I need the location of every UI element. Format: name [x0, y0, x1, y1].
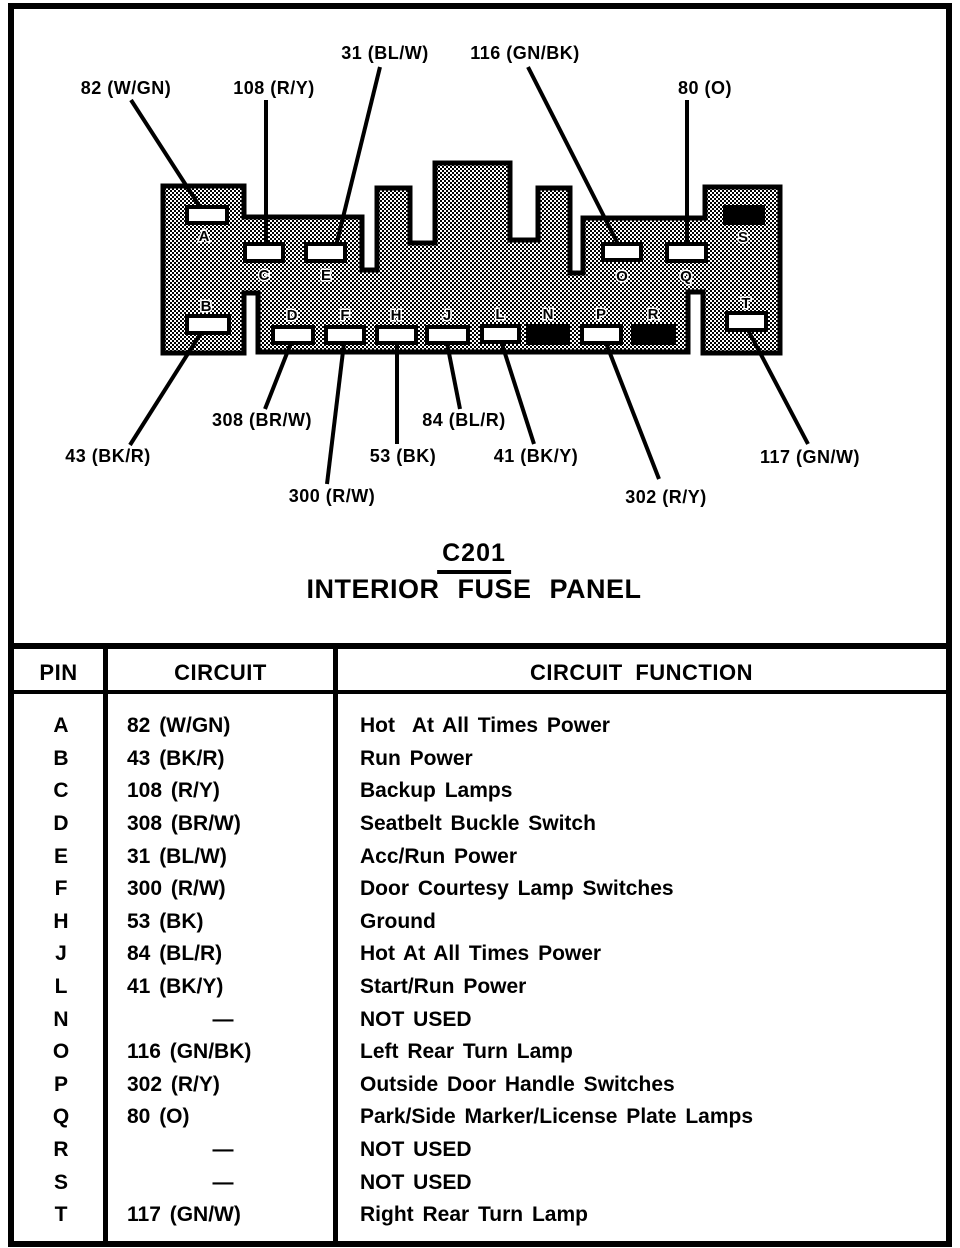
callout-label-31: 31 (BL/W)	[341, 43, 429, 64]
pin-cell: H	[14, 910, 108, 934]
pin-cell: D	[14, 812, 108, 836]
table-header-separator	[8, 690, 952, 694]
circuit-cell: 31 (BL/W)	[108, 845, 338, 869]
callout-label-302: 302 (R/Y)	[625, 487, 707, 508]
column-header-pin: PIN	[14, 659, 103, 687]
table-row: H 53 (BK) Ground	[14, 906, 945, 939]
function-cell: NOT USED	[338, 1171, 945, 1195]
function-cell: Door Courtesy Lamp Switches	[338, 877, 945, 901]
callout-label-300: 300 (R/W)	[289, 486, 376, 507]
pin-letter-q: Q	[680, 268, 692, 285]
pin-slot-q	[667, 244, 706, 261]
callout-label-108: 108 (R/Y)	[233, 78, 315, 99]
callout-line-41	[501, 341, 534, 444]
table-row: J 84 (BL/R) Hot At All Times Power	[14, 938, 945, 971]
pin-letter-d: D	[287, 307, 298, 324]
function-cell: Acc/Run Power	[338, 845, 945, 869]
pin-slot-h	[377, 327, 416, 343]
pin-cell: P	[14, 1073, 108, 1097]
function-cell: Park/Side Marker/License Plate Lamps	[338, 1105, 945, 1129]
circuit-cell: 302 (R/Y)	[108, 1073, 338, 1097]
function-cell: Run Power	[338, 747, 945, 771]
circuit-cell: 53 (BK)	[108, 910, 338, 934]
pin-cell: Q	[14, 1105, 108, 1129]
pin-letter-h: H	[391, 307, 402, 324]
table-row: C 108 (R/Y) Backup Lamps	[14, 775, 945, 808]
table-row: T 117 (GN/W) Right Rear Turn Lamp	[14, 1199, 945, 1232]
table-row: O 116 (GN/BK) Left Rear Turn Lamp	[14, 1036, 945, 1069]
table-row: E 31 (BL/W) Acc/Run Power	[14, 840, 945, 873]
callout-label-308: 308 (BR/W)	[212, 410, 312, 431]
circuit-cell: 80 (O)	[108, 1105, 338, 1129]
pin-letter-c: C	[259, 267, 270, 284]
function-cell: NOT USED	[338, 1008, 945, 1032]
pin-letter-b: B	[201, 298, 212, 315]
pin-slot-s	[725, 207, 763, 223]
pin-letter-e: E	[321, 267, 331, 284]
circuit-cell: —	[108, 1171, 338, 1195]
function-cell: Left Rear Turn Lamp	[338, 1040, 945, 1064]
table-row: D 308 (BR/W) Seatbelt Buckle Switch	[14, 808, 945, 841]
table-row: A 82 (W/GN) Hot At All Times Power	[14, 710, 945, 743]
pin-cell: C	[14, 779, 108, 803]
pin-slot-l	[482, 326, 519, 342]
callout-label-82: 82 (W/GN)	[81, 78, 172, 99]
circuit-cell: —	[108, 1138, 338, 1162]
pin-letter-r: R	[648, 306, 659, 323]
circuit-cell: 116 (GN/BK)	[108, 1040, 338, 1064]
table-row: B 43 (BK/R) Run Power	[14, 743, 945, 776]
pin-letter-p: P	[596, 306, 606, 323]
table-row: L 41 (BK/Y) Start/Run Power	[14, 971, 945, 1004]
table-row: F 300 (R/W) Door Courtesy Lamp Switches	[14, 873, 945, 906]
circuit-cell: 117 (GN/W)	[108, 1203, 338, 1227]
pin-cell: A	[14, 714, 108, 738]
pin-letter-o: O	[616, 268, 628, 285]
pin-letter-s: S	[738, 229, 748, 246]
circuit-cell: 43 (BK/R)	[108, 747, 338, 771]
pin-slot-o	[603, 244, 641, 260]
column-header-circuit: CIRCUIT	[108, 659, 333, 687]
pin-cell: N	[14, 1008, 108, 1032]
column-header-function: CIRCUIT FUNCTION	[338, 659, 945, 687]
circuit-cell: 300 (R/W)	[108, 877, 338, 901]
table-row: P 302 (R/Y) Outside Door Handle Switches	[14, 1069, 945, 1102]
callout-label-116: 116 (GN/BK)	[470, 43, 580, 64]
pin-slot-d	[273, 327, 313, 343]
pin-slot-f	[326, 327, 364, 343]
pin-cell: B	[14, 747, 108, 771]
pin-cell: O	[14, 1040, 108, 1064]
callout-line-302	[606, 343, 659, 479]
table-row: Q 80 (O) Park/Side Marker/License Plate …	[14, 1101, 945, 1134]
function-cell: Backup Lamps	[338, 779, 945, 803]
callout-label-117: 117 (GN/W)	[760, 447, 860, 468]
table-row: N — NOT USED	[14, 1003, 945, 1036]
circuit-cell: 84 (BL/R)	[108, 942, 338, 966]
connector-name-title: INTERIOR FUSE PANEL	[306, 574, 641, 605]
circuit-cell: 41 (BK/Y)	[108, 975, 338, 999]
function-cell: Outside Door Handle Switches	[338, 1073, 945, 1097]
callout-label-84: 84 (BL/R)	[422, 410, 506, 431]
function-cell: Right Rear Turn Lamp	[338, 1203, 945, 1227]
table-row: R — NOT USED	[14, 1134, 945, 1167]
pin-cell: L	[14, 975, 108, 999]
table-row: S — NOT USED	[14, 1166, 945, 1199]
pin-cell: E	[14, 845, 108, 869]
function-cell: Start/Run Power	[338, 975, 945, 999]
pin-cell: R	[14, 1138, 108, 1162]
function-cell: Seatbelt Buckle Switch	[338, 812, 945, 836]
pin-slot-c	[245, 244, 283, 261]
pin-cell: F	[14, 877, 108, 901]
pin-cell: S	[14, 1171, 108, 1195]
pin-slot-e	[306, 244, 345, 261]
function-cell: Ground	[338, 910, 945, 934]
pin-cell: T	[14, 1203, 108, 1227]
pin-cell: J	[14, 942, 108, 966]
circuit-cell: 308 (BR/W)	[108, 812, 338, 836]
pin-letter-f: F	[340, 307, 349, 324]
pin-table-body: A 82 (W/GN) Hot At All Times Power B 43 …	[14, 710, 945, 1232]
pin-letter-t: T	[741, 295, 750, 312]
function-cell: Hot At All Times Power	[338, 942, 945, 966]
pin-slot-r	[633, 326, 674, 343]
pin-letter-n: N	[543, 306, 554, 323]
function-cell: Hot At All Times Power	[338, 714, 945, 738]
pin-slot-a	[187, 207, 227, 223]
pin-slot-t	[727, 313, 766, 330]
circuit-cell: 108 (R/Y)	[108, 779, 338, 803]
circuit-cell: 82 (W/GN)	[108, 714, 338, 738]
pin-slot-b	[187, 316, 229, 333]
connector-id-title: C201	[437, 539, 511, 574]
pin-slot-n	[528, 326, 568, 343]
function-cell: NOT USED	[338, 1138, 945, 1162]
callout-label-53: 53 (BK)	[370, 446, 437, 467]
callout-label-41: 41 (BK/Y)	[494, 446, 579, 467]
pin-slot-j	[427, 327, 468, 343]
pin-letter-j: J	[443, 307, 451, 324]
pin-letter-l: L	[495, 306, 504, 323]
circuit-cell: —	[108, 1008, 338, 1032]
callout-label-43: 43 (BK/R)	[65, 446, 151, 467]
pin-letter-a: A	[199, 228, 210, 245]
callout-label-80: 80 (O)	[678, 78, 732, 99]
table-top-border	[8, 643, 952, 649]
callout-line-300	[327, 343, 344, 484]
pin-slot-p	[582, 326, 621, 343]
